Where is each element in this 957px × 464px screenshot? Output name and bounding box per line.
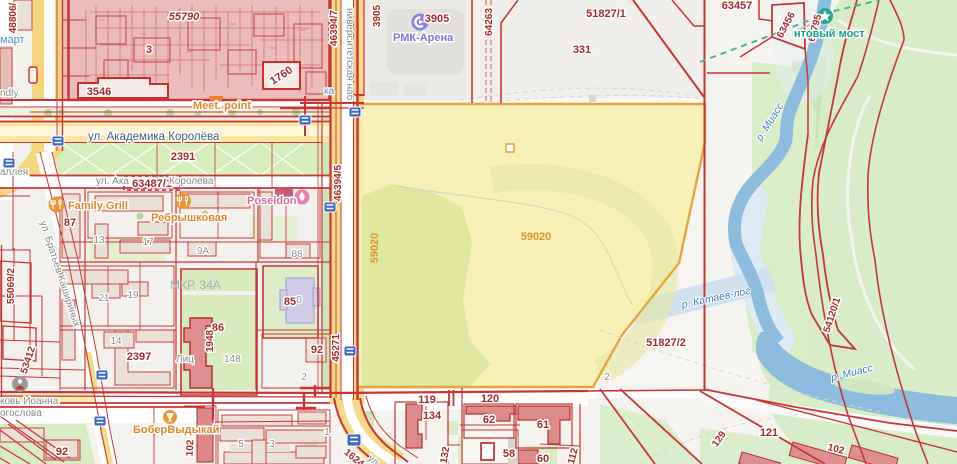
svg-text:Meet. point: Meet. point <box>193 100 251 112</box>
svg-text:46394/5: 46394/5 <box>333 164 344 201</box>
svg-text:3: 3 <box>269 439 275 450</box>
svg-text:58: 58 <box>503 448 515 460</box>
svg-text:55069/2: 55069/2 <box>6 267 17 304</box>
svg-text:2: 2 <box>301 372 307 383</box>
svg-text:134: 134 <box>423 410 442 422</box>
svg-text:Poseidon: Poseidon <box>247 195 297 207</box>
svg-text:48806/: 48806/ <box>8 2 19 33</box>
svg-text:61: 61 <box>537 419 549 431</box>
svg-text:92: 92 <box>311 344 323 356</box>
svg-text:ка: ка <box>324 86 335 97</box>
svg-text:3: 3 <box>146 44 152 56</box>
svg-text:88: 88 <box>291 249 303 260</box>
svg-text:63457: 63457 <box>722 0 753 12</box>
svg-text:Ребрышковая: Ребрышковая <box>151 212 227 224</box>
svg-text:1948: 1948 <box>205 329 216 352</box>
svg-text:55790: 55790 <box>169 11 200 23</box>
svg-text:1: 1 <box>324 427 330 438</box>
svg-text:87: 87 <box>64 217 76 229</box>
svg-text:ndly: ndly <box>0 88 18 99</box>
svg-text:3905: 3905 <box>372 4 383 27</box>
svg-text:ул. Академика Королёва: ул. Академика Королёва <box>88 131 220 143</box>
svg-text:Family Grill: Family Grill <box>68 200 128 212</box>
svg-text:2: 2 <box>604 372 610 383</box>
svg-text:119: 119 <box>418 394 436 406</box>
svg-text:63487/1: 63487/1 <box>132 178 172 190</box>
svg-text:0: 0 <box>296 295 302 306</box>
svg-text:19: 19 <box>127 290 139 301</box>
svg-text:3905: 3905 <box>425 13 449 25</box>
svg-text:21: 21 <box>98 293 110 304</box>
svg-text:ул. Ака: ул. Ака <box>96 176 129 187</box>
svg-text:Лиц: Лиц <box>176 354 194 365</box>
svg-text:нтовый мост: нтовый мост <box>794 28 865 40</box>
svg-text:85: 85 <box>284 296 296 308</box>
svg-text:март: март <box>0 34 25 46</box>
svg-text:51827/1: 51827/1 <box>586 8 626 20</box>
svg-text:121: 121 <box>760 427 778 439</box>
svg-text:2391: 2391 <box>171 151 195 163</box>
svg-text:62: 62 <box>483 414 495 426</box>
svg-text:64263: 64263 <box>484 8 495 36</box>
svg-text:МКР. 34А: МКР. 34А <box>170 278 221 292</box>
svg-text:59020: 59020 <box>369 233 381 264</box>
svg-text:102: 102 <box>185 439 197 457</box>
svg-text:БоберВыдыкай: БоберВыдыкай <box>133 424 219 436</box>
svg-text:3546: 3546 <box>87 86 111 98</box>
svg-text:14: 14 <box>110 336 122 347</box>
svg-text:ниверситетская наб: ниверситетская наб <box>344 8 356 101</box>
svg-text:92: 92 <box>56 446 68 458</box>
svg-text:2397: 2397 <box>127 351 151 363</box>
svg-text:17: 17 <box>142 237 154 248</box>
svg-text:Королева: Королева <box>169 176 214 187</box>
svg-text:45271: 45271 <box>331 334 342 362</box>
svg-text:51827/2: 51827/2 <box>646 337 686 349</box>
svg-text:огослова: огослова <box>0 408 42 419</box>
svg-text:РМК-Арена: РМК-Арена <box>393 32 454 44</box>
svg-text:5: 5 <box>238 439 244 450</box>
svg-text:59020: 59020 <box>521 231 552 243</box>
svg-text:46394/7: 46394/7 <box>329 9 340 46</box>
svg-text:13: 13 <box>93 235 105 246</box>
svg-text:ковь Иоанна: ковь Иоанна <box>0 396 59 407</box>
svg-text:9А: 9А <box>197 246 210 257</box>
svg-text:120: 120 <box>481 393 499 405</box>
svg-text:148: 148 <box>224 354 241 365</box>
svg-text:аллея: аллея <box>0 167 28 178</box>
svg-text:60: 60 <box>537 453 549 464</box>
svg-text:331: 331 <box>573 44 591 56</box>
